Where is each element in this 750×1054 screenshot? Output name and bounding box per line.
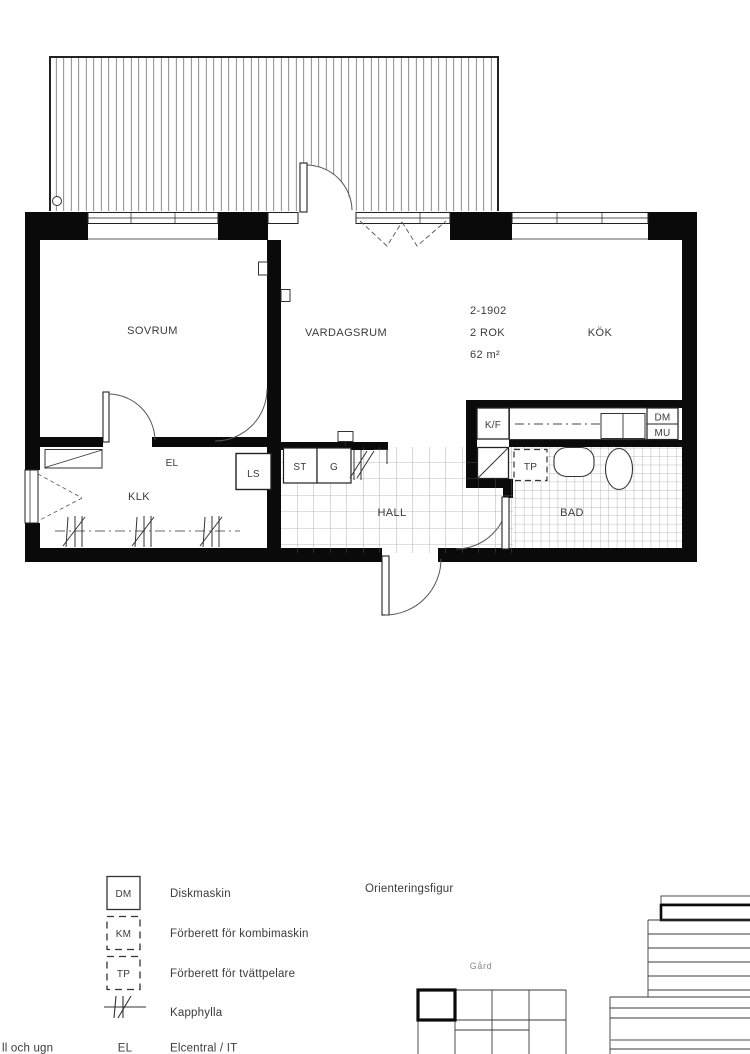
room-label-bad: BAD xyxy=(560,507,584,519)
unit-location-marker xyxy=(418,990,455,1020)
cropped-legend-text: ll och ugn xyxy=(2,1043,53,1054)
km-symbol: KM xyxy=(116,929,131,940)
kapphylla-label: Kapphylla xyxy=(170,1007,223,1019)
kapphylla-legend-icon xyxy=(104,996,146,1018)
label-st: ST xyxy=(293,462,306,473)
label-mu: MU xyxy=(655,428,671,439)
legend-item-kapphylla: Kapphylla xyxy=(104,996,223,1019)
window-kok xyxy=(512,213,648,240)
room-label-klk: KLK xyxy=(128,491,150,503)
toilet xyxy=(606,449,633,490)
legend-item-tp: TP Förberett för tvättpelare xyxy=(107,957,295,990)
balcony-door-leaf xyxy=(300,163,307,212)
drain-icon xyxy=(53,197,62,206)
unit-id: 2-1902 xyxy=(470,305,507,317)
window-balcony-right xyxy=(356,213,450,224)
windows xyxy=(88,213,648,247)
room-label-vardagsrum: VARDAGSRUM xyxy=(305,327,387,339)
dm-symbol: DM xyxy=(116,889,132,900)
wall-box-vardagsrum xyxy=(281,290,290,302)
window-sovrum xyxy=(88,213,218,240)
room-label-sovrum: SOVRUM xyxy=(127,325,178,337)
unit-rooms: 2 ROK xyxy=(470,327,505,339)
tp-symbol: TP xyxy=(117,969,130,980)
folding-partition-dashes xyxy=(360,221,446,246)
window-klk xyxy=(25,470,82,523)
door-sovrum xyxy=(103,392,155,442)
site-building-left xyxy=(418,990,566,1054)
vent-box xyxy=(338,432,353,442)
unit-area: 62 m² xyxy=(470,349,500,361)
wall-box-sovrum xyxy=(259,262,268,275)
km-label: Förberett för kombimaskin xyxy=(170,928,309,940)
unit-info: 2-1902 2 ROK 62 m² xyxy=(470,305,507,361)
dm-label: Diskmaskin xyxy=(170,888,231,900)
legend-item-km: KM Förberett för kombimaskin xyxy=(107,917,309,950)
el-symbol: EL xyxy=(118,1043,133,1054)
room-label-kok: KÖK xyxy=(588,327,613,339)
legend-item-dm: DM Diskmaskin xyxy=(107,877,231,910)
site-building-right xyxy=(610,896,750,1054)
label-kf: K/F xyxy=(485,420,501,431)
window-balcony-left xyxy=(268,213,298,224)
orientation-title: Orienteringsfigur xyxy=(365,883,453,895)
legend: DM Diskmaskin KM Förberett för kombimask… xyxy=(2,877,453,1054)
label-g: G xyxy=(330,462,338,473)
floorplan-drawing: SOVRUM VARDAGSRUM KÖK KLK HALL BAD EL LS… xyxy=(0,0,750,1054)
label-el: EL xyxy=(166,458,179,469)
balcony xyxy=(50,57,498,212)
legend-item-el: EL Elcentral / IT xyxy=(118,1043,238,1054)
kapphylla-klk-icons xyxy=(63,516,222,547)
door-entry xyxy=(382,556,441,615)
el-label: Elcentral / IT xyxy=(170,1043,237,1054)
courtyard-label: Gård xyxy=(470,961,492,971)
label-dm: DM xyxy=(655,413,671,424)
shower xyxy=(478,448,509,479)
washbasin xyxy=(554,448,594,477)
label-ls: LS xyxy=(247,469,260,480)
room-label-hall: HALL xyxy=(377,507,406,519)
label-tp: TP xyxy=(524,462,537,473)
orientation-figure: Gård xyxy=(418,896,750,1054)
door-arc-vardagsrum xyxy=(215,389,267,441)
tp-label: Förberett för tvättpelare xyxy=(170,968,295,980)
floorplan-page: SOVRUM VARDAGSRUM KÖK KLK HALL BAD EL LS… xyxy=(0,0,750,1054)
kitchen-fixtures xyxy=(477,408,678,440)
